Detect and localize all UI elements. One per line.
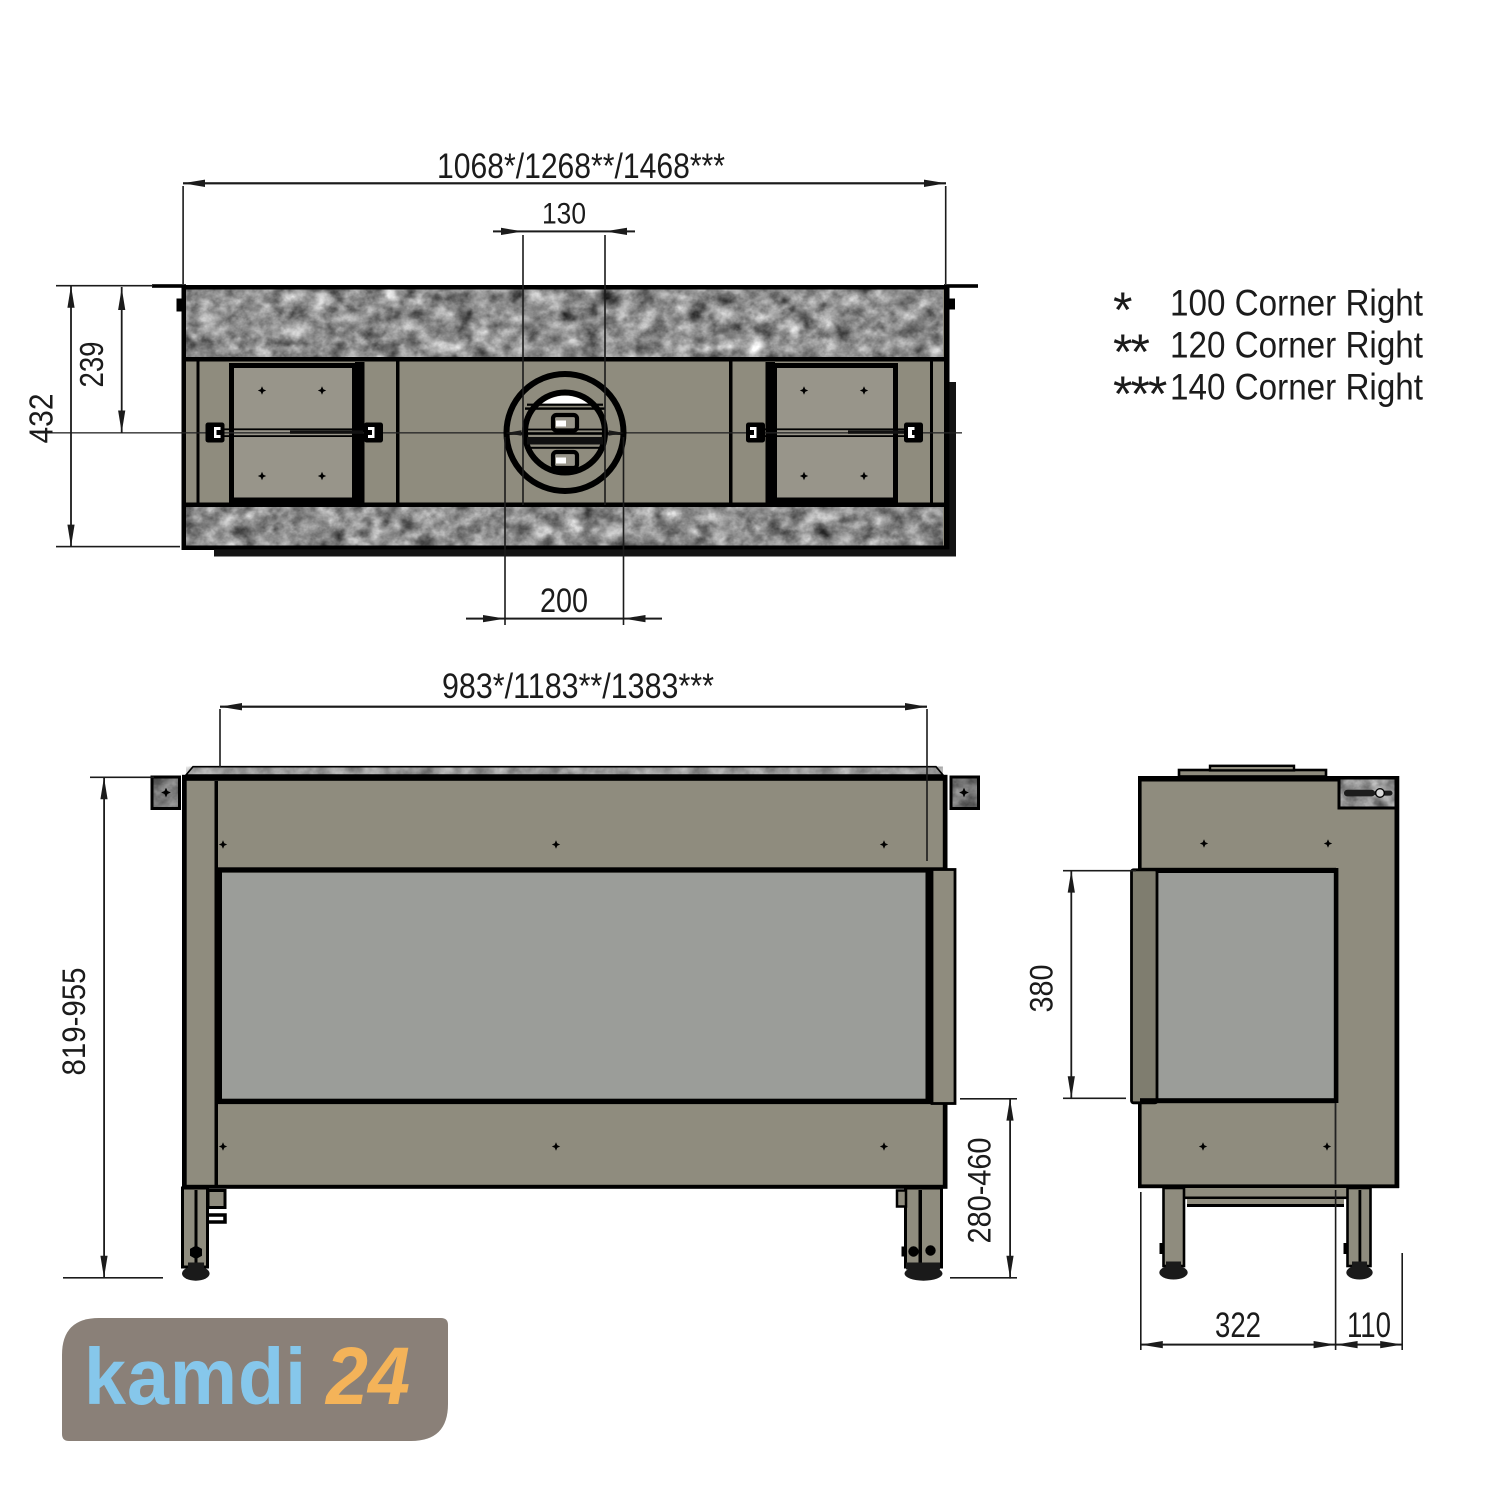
svg-text:1068*/1268**/1468***: 1068*/1268**/1468***: [437, 147, 725, 186]
svg-text:322: 322: [1215, 1306, 1261, 1345]
svg-text:110: 110: [1347, 1306, 1391, 1345]
svg-text:120 Corner Right: 120 Corner Right: [1170, 325, 1424, 366]
svg-text:***: ***: [1113, 366, 1167, 422]
svg-text:280-460: 280-460: [962, 1138, 998, 1244]
svg-text:24: 24: [324, 1331, 410, 1422]
svg-text:140 Corner Right: 140 Corner Right: [1170, 367, 1424, 408]
svg-text:100 Corner Right: 100 Corner Right: [1170, 283, 1424, 324]
svg-text:819-955: 819-955: [56, 968, 92, 1076]
svg-text:983*/1183**/1383***: 983*/1183**/1383***: [442, 667, 714, 706]
svg-text:200: 200: [540, 582, 588, 620]
svg-text:432: 432: [23, 394, 60, 444]
svg-text:380: 380: [1024, 965, 1060, 1013]
svg-text:239: 239: [73, 342, 110, 388]
svg-text:kamdi: kamdi: [84, 1332, 307, 1421]
svg-text:130: 130: [542, 198, 586, 231]
